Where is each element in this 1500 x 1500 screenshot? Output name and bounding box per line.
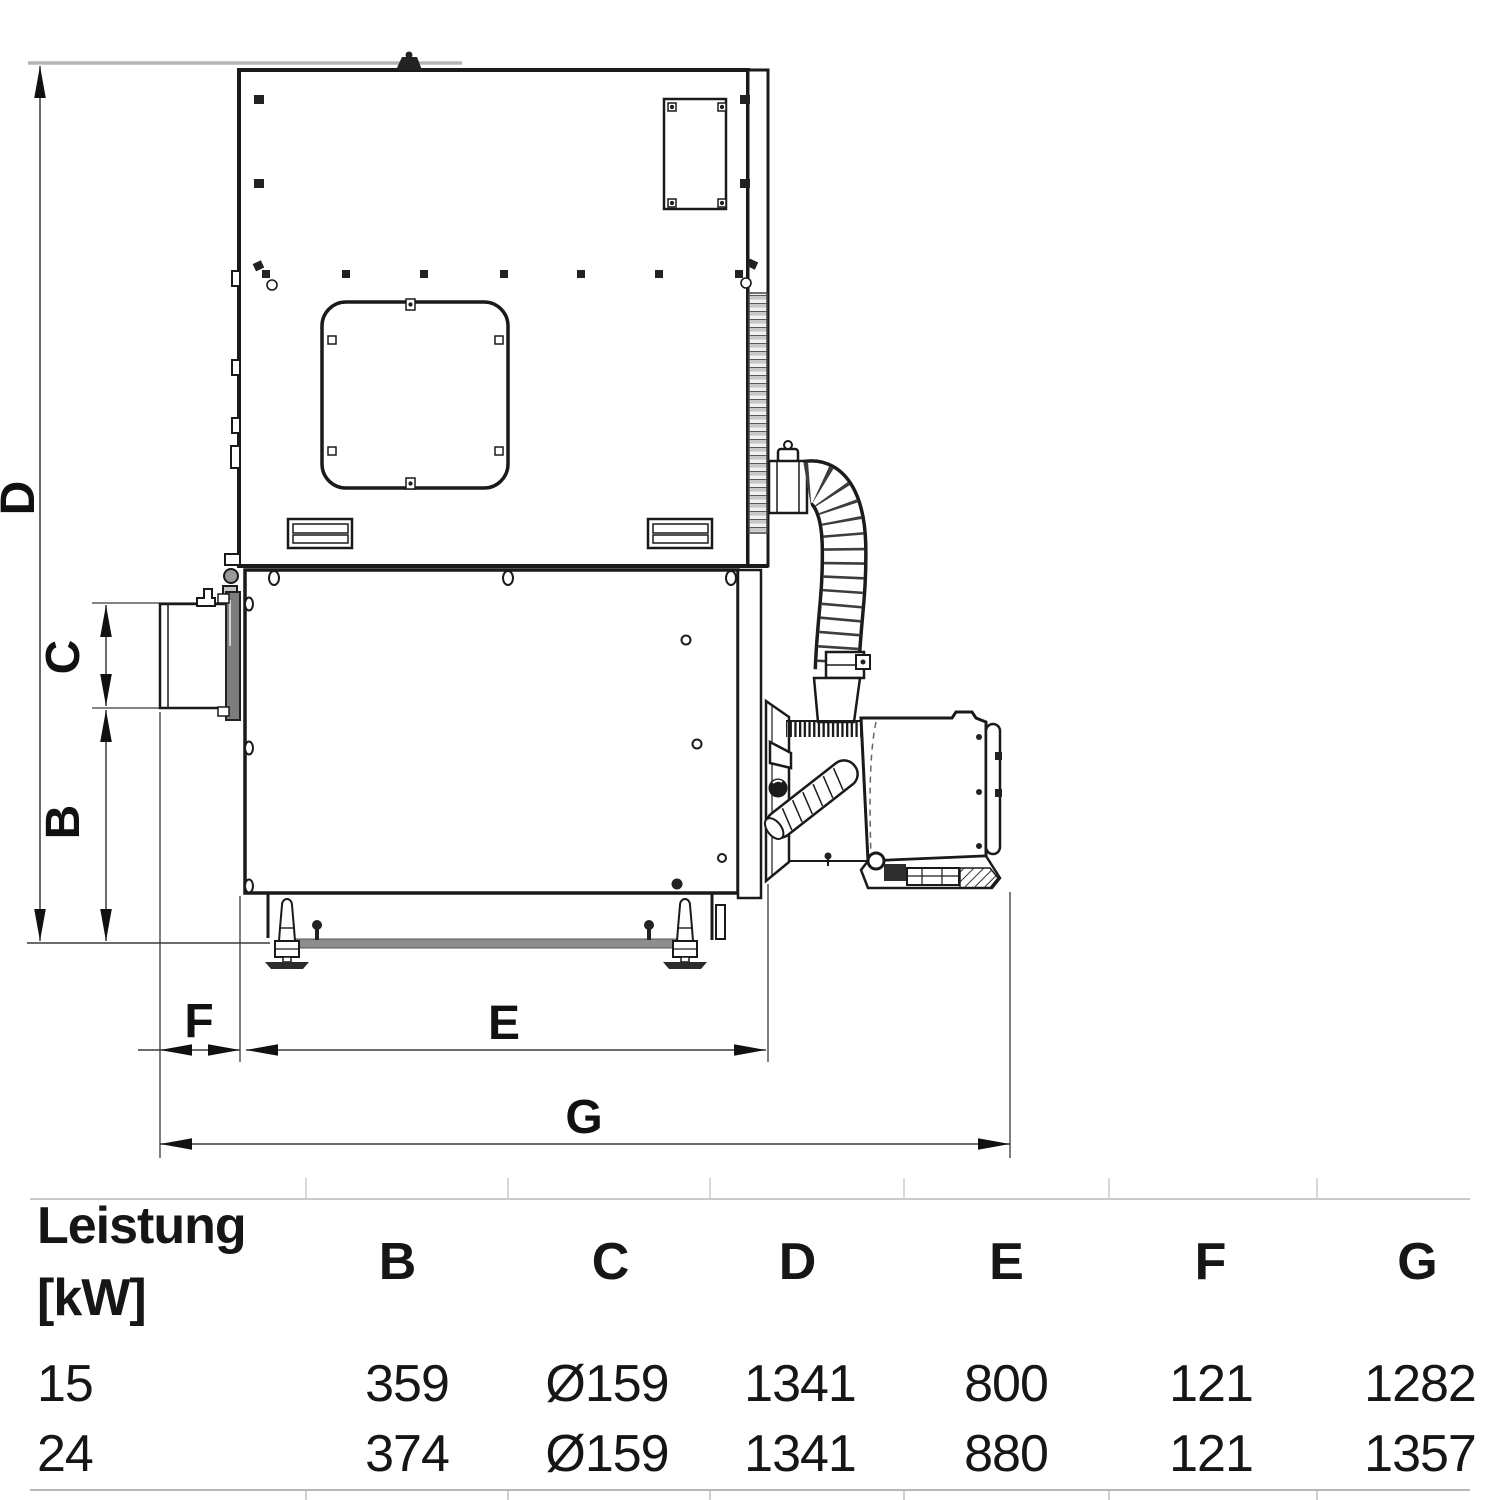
burner-underside bbox=[861, 853, 1000, 888]
dim-label-B: B bbox=[40, 805, 88, 840]
row2-E: 880 bbox=[964, 1428, 1048, 1480]
flue-collar bbox=[769, 441, 807, 513]
flue-outlet-stub bbox=[160, 589, 240, 720]
table-bottom-border bbox=[30, 1489, 1470, 1491]
table-header-D: D bbox=[779, 1236, 816, 1288]
boiler-upper-cabinet bbox=[223, 52, 768, 609]
dim-label-F: F bbox=[184, 998, 213, 1046]
table-header-E: E bbox=[989, 1236, 1023, 1288]
corrugated-side-strip bbox=[749, 293, 767, 533]
row1-power: 15 bbox=[37, 1358, 93, 1410]
dim-label-G: G bbox=[565, 1094, 602, 1142]
hose-lower-pipe bbox=[814, 678, 860, 722]
table-header-power-line1: Leistung bbox=[37, 1200, 246, 1252]
row1-F: 121 bbox=[1169, 1358, 1253, 1410]
flue-hose-assembly bbox=[769, 441, 870, 722]
burner-body bbox=[861, 712, 986, 861]
boiler-technical-drawing bbox=[0, 0, 1500, 1500]
dim-label-E: E bbox=[488, 1000, 520, 1048]
row1-G: 1282 bbox=[1364, 1358, 1476, 1410]
table-top-border bbox=[30, 1198, 1470, 1200]
table-header-power-line2: [kW] bbox=[37, 1272, 146, 1324]
pellet-boiler-dimension-sheet: D C B F E G Leistung [kW] B C D E F G 15… bbox=[0, 0, 1500, 1500]
row2-F: 121 bbox=[1169, 1428, 1253, 1480]
junction-box bbox=[664, 99, 726, 209]
base-frame-and-feet bbox=[265, 893, 725, 969]
table-header-C: C bbox=[592, 1236, 629, 1288]
door-handle-left bbox=[288, 519, 352, 548]
row1-E: 800 bbox=[964, 1358, 1048, 1410]
table-header-B: B bbox=[379, 1236, 416, 1288]
row2-G: 1357 bbox=[1364, 1428, 1476, 1480]
adjustable-foot-right bbox=[663, 899, 707, 969]
dim-label-C: C bbox=[40, 640, 88, 675]
base-bar bbox=[295, 939, 683, 948]
row1-B: 359 bbox=[365, 1358, 449, 1410]
row2-C: Ø159 bbox=[545, 1428, 668, 1480]
dim-label-D: D bbox=[0, 481, 43, 516]
top-lug bbox=[396, 57, 422, 70]
row2-power: 24 bbox=[37, 1428, 93, 1480]
burner-handle bbox=[760, 742, 863, 843]
inspection-door bbox=[322, 299, 508, 489]
pellet-burner bbox=[760, 701, 1002, 888]
boiler-lower-cabinet bbox=[245, 570, 761, 898]
row1-C: Ø159 bbox=[545, 1358, 668, 1410]
door-handle-right bbox=[648, 519, 712, 548]
row1-D: 1341 bbox=[744, 1358, 856, 1410]
row2-B: 374 bbox=[365, 1428, 449, 1480]
row2-D: 1341 bbox=[744, 1428, 856, 1480]
base-bolts bbox=[312, 920, 654, 940]
adjustable-foot-left bbox=[265, 899, 309, 969]
table-header-G: G bbox=[1397, 1236, 1436, 1288]
flexible-hose bbox=[807, 483, 844, 670]
table-header-F: F bbox=[1195, 1236, 1226, 1288]
